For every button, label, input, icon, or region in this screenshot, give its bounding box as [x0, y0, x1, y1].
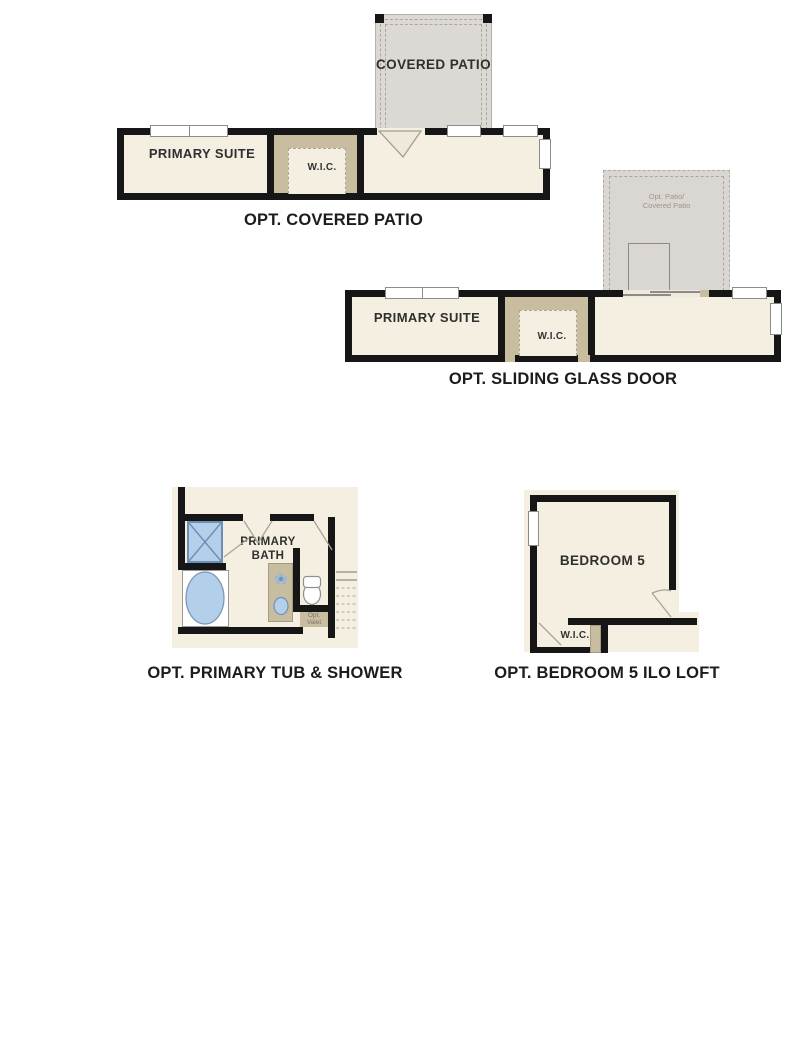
plan-bedroom5-ilo-loft: BEDROOM 5 W.I.C. OPT. BEDROOM 5 ILO LOFT — [0, 0, 810, 1048]
wic-label: W.I.C. — [552, 630, 598, 641]
bedroom5-label: BEDROOM 5 — [545, 553, 660, 569]
wall — [530, 495, 676, 502]
wall — [530, 647, 590, 653]
wall — [669, 495, 676, 590]
window — [528, 511, 539, 546]
floor-plan-sheet: COVERED PATIO PRIMARY SUITE W.I.C. OPT. … — [0, 0, 810, 1048]
plan-caption: OPT. BEDROOM 5 ILO LOFT — [437, 664, 777, 683]
wall — [568, 618, 697, 625]
wall — [601, 625, 608, 653]
